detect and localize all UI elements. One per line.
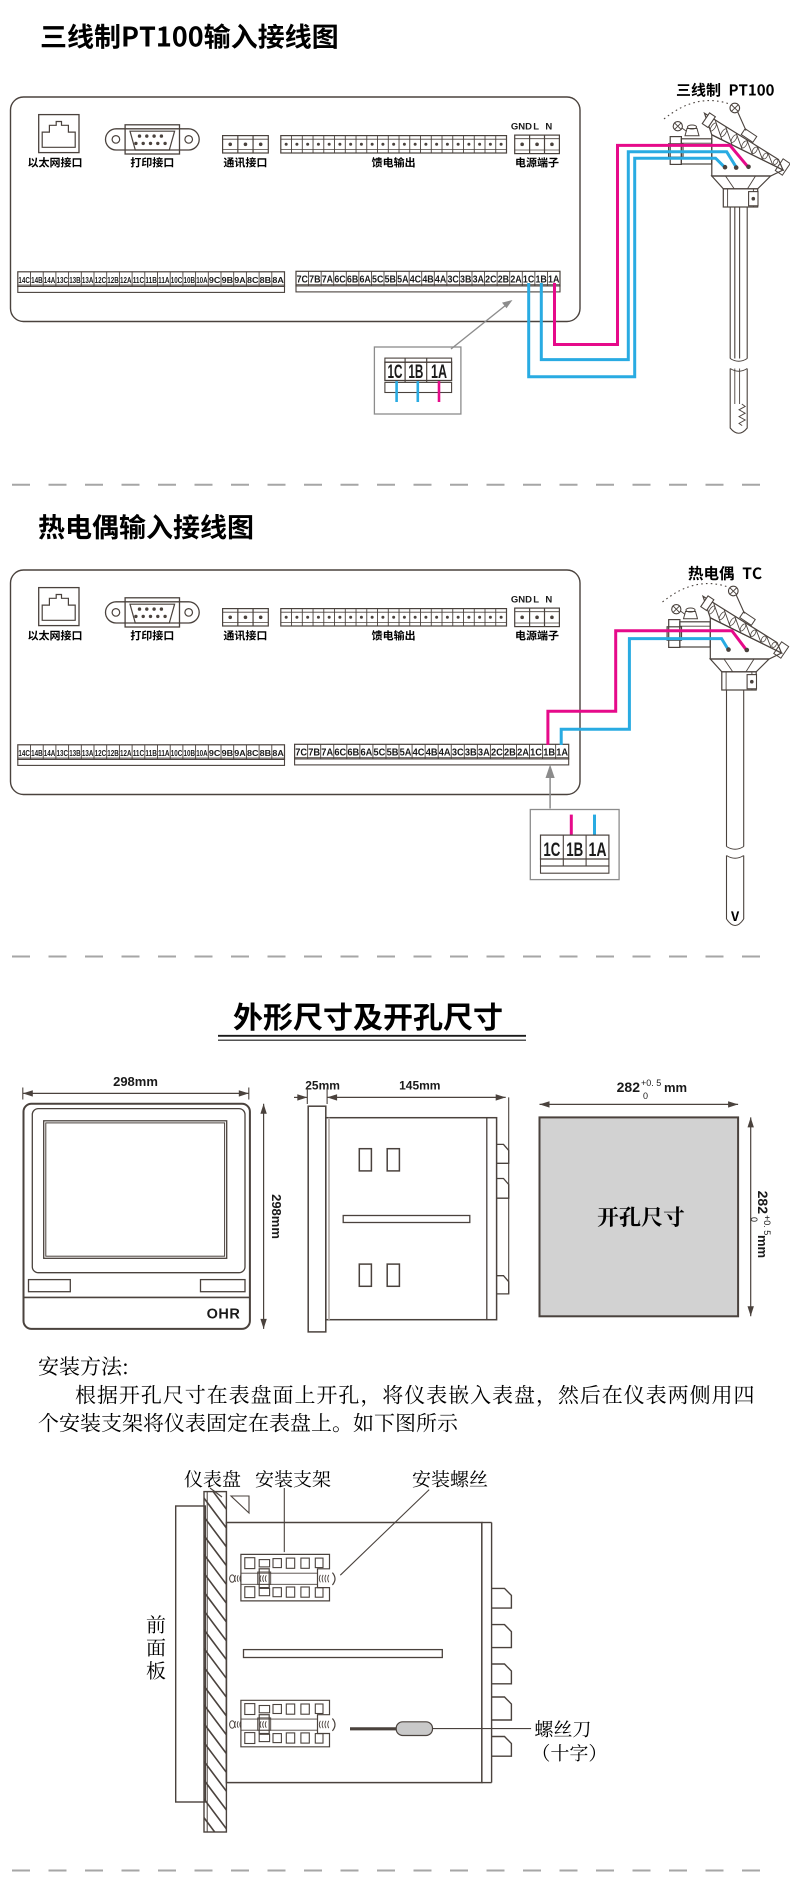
svg-text:2B: 2B [504, 748, 516, 759]
svg-text:5A: 5A [400, 748, 412, 759]
svg-text:13B: 13B [69, 275, 81, 285]
svg-text:1C: 1C [388, 362, 403, 383]
svg-text:10C: 10C [171, 275, 183, 285]
svg-text:12A: 12A [120, 275, 132, 285]
svg-text:13C: 13C [57, 275, 69, 285]
svg-text:11C: 11C [133, 275, 145, 285]
svg-text:7A: 7A [322, 275, 334, 286]
svg-text:9A: 9A [234, 748, 246, 758]
svg-text:1A: 1A [556, 748, 568, 759]
svg-text:282: 282 [617, 1079, 641, 1095]
svg-text:282: 282 [755, 1191, 771, 1215]
svg-text:8B: 8B [260, 275, 272, 285]
svg-text:7C: 7C [295, 748, 307, 759]
svg-text:7B: 7B [308, 748, 320, 759]
svg-text:9C: 9C [209, 748, 221, 758]
svg-text:14A: 14A [44, 748, 56, 758]
svg-text:L: L [533, 121, 539, 132]
svg-text:GND: GND [511, 121, 532, 132]
svg-text:3B: 3B [460, 275, 471, 286]
svg-text:13A: 13A [82, 275, 94, 285]
svg-text:12A: 12A [120, 748, 132, 758]
svg-text:13B: 13B [69, 748, 81, 758]
svg-text:13A: 13A [82, 748, 94, 758]
svg-text:12B: 12B [107, 748, 119, 758]
svg-text:2B: 2B [498, 275, 509, 286]
svg-text:11B: 11B [145, 748, 157, 758]
svg-text:25mm: 25mm [305, 1079, 340, 1093]
svg-text:9C: 9C [209, 275, 221, 285]
svg-text:1B: 1B [408, 362, 423, 383]
svg-text:2A: 2A [510, 275, 522, 286]
svg-text:9A: 9A [234, 275, 246, 285]
svg-text:6C: 6C [334, 748, 346, 759]
svg-text:10A: 10A [196, 748, 208, 758]
svg-text:11A: 11A [158, 748, 170, 758]
svg-text:2C: 2C [491, 748, 503, 759]
svg-text:1A: 1A [431, 362, 447, 383]
svg-text:4C: 4C [413, 748, 425, 759]
svg-text:L: L [533, 594, 539, 605]
svg-text:13C: 13C [57, 748, 69, 758]
svg-text:145mm: 145mm [399, 1079, 440, 1093]
svg-text:0: 0 [643, 1091, 648, 1101]
svg-text:3C: 3C [452, 748, 464, 759]
svg-text:1C: 1C [543, 840, 560, 861]
svg-text:7A: 7A [321, 748, 333, 759]
svg-text:mm: mm [755, 1235, 770, 1258]
svg-text:2A: 2A [517, 748, 529, 759]
svg-text:6A: 6A [360, 748, 372, 759]
svg-text:14B: 14B [31, 748, 43, 758]
svg-text:3A: 3A [478, 748, 490, 759]
svg-text:10A: 10A [196, 275, 208, 285]
svg-text:5C: 5C [372, 275, 384, 286]
svg-text:9B: 9B [222, 275, 234, 285]
svg-text:3C: 3C [447, 275, 459, 286]
svg-text:14C: 14C [18, 748, 30, 758]
svg-text:5C: 5C [374, 748, 386, 759]
svg-text:4B: 4B [422, 275, 433, 286]
svg-text:8C: 8C [247, 275, 259, 285]
svg-text:1A: 1A [589, 840, 607, 861]
svg-text:N: N [545, 594, 552, 605]
svg-text:4A: 4A [435, 275, 447, 286]
svg-text:4A: 4A [439, 748, 451, 759]
svg-text:4C: 4C [410, 275, 422, 286]
svg-text:12C: 12C [95, 748, 107, 758]
svg-text:+0. 5: +0. 5 [641, 1078, 661, 1088]
svg-text:10B: 10B [184, 275, 196, 285]
svg-text:6B: 6B [347, 275, 358, 286]
svg-text:298mm: 298mm [113, 1074, 158, 1089]
svg-text:OHR: OHR [207, 1307, 241, 1323]
svg-text:5A: 5A [397, 275, 409, 286]
svg-text:11B: 11B [145, 275, 157, 285]
svg-text:1B: 1B [566, 840, 583, 861]
svg-text:3B: 3B [465, 748, 477, 759]
svg-text:GND: GND [511, 594, 532, 605]
svg-text:2C: 2C [485, 275, 497, 286]
svg-text:5B: 5B [385, 275, 396, 286]
svg-text:6A: 6A [359, 275, 371, 286]
svg-text:12C: 12C [95, 275, 107, 285]
svg-text:1B: 1B [543, 748, 555, 759]
svg-text:N: N [545, 121, 552, 132]
svg-text:8A: 8A [272, 748, 284, 758]
svg-text:8B: 8B [260, 748, 272, 758]
svg-text:10C: 10C [171, 748, 183, 758]
svg-text:0: 0 [749, 1217, 759, 1222]
svg-text:4B: 4B [426, 748, 438, 759]
svg-text:298mm: 298mm [269, 1194, 284, 1239]
svg-text:10B: 10B [184, 748, 196, 758]
svg-text:6C: 6C [334, 275, 346, 286]
svg-text:7C: 7C [297, 275, 309, 286]
svg-text:5B: 5B [387, 748, 399, 759]
svg-text:6B: 6B [347, 748, 359, 759]
svg-text:11A: 11A [158, 275, 170, 285]
svg-text:8A: 8A [272, 275, 284, 285]
svg-text:8C: 8C [247, 748, 259, 758]
svg-text:12B: 12B [107, 275, 119, 285]
svg-text:mm: mm [664, 1080, 687, 1095]
svg-text:14A: 14A [44, 275, 56, 285]
svg-text:+0. 5: +0. 5 [762, 1215, 772, 1235]
svg-text:14B: 14B [31, 275, 43, 285]
svg-text:9B: 9B [222, 748, 234, 758]
svg-text:14C: 14C [18, 275, 30, 285]
svg-text:11C: 11C [133, 748, 145, 758]
svg-text:3A: 3A [473, 275, 485, 286]
svg-text:7B: 7B [309, 275, 320, 286]
svg-text:1C: 1C [530, 748, 542, 759]
